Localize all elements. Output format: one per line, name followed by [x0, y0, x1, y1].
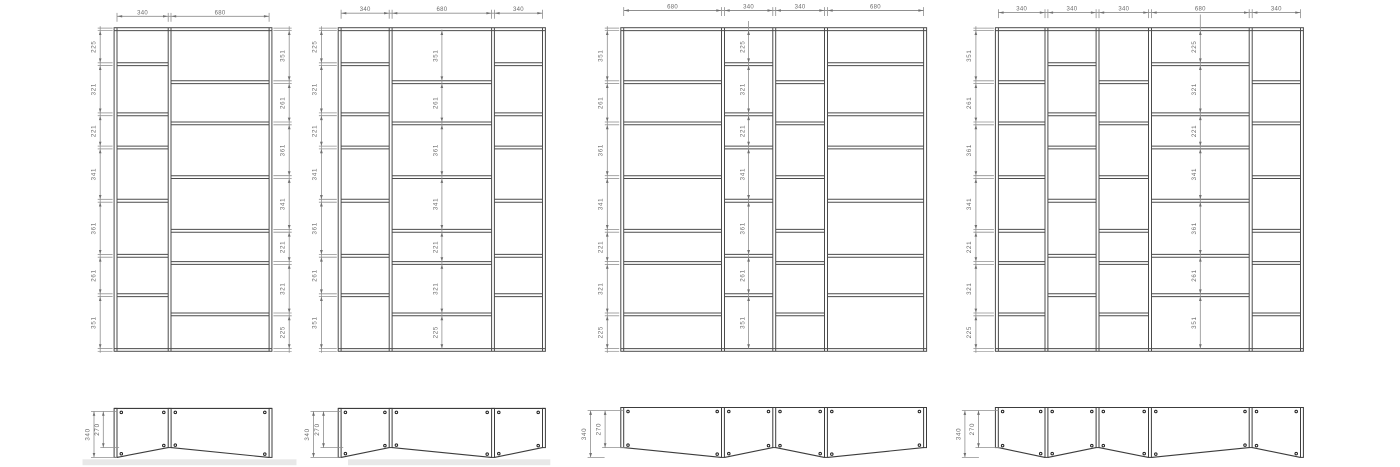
svg-text:361: 361: [598, 144, 605, 156]
svg-text:225: 225: [280, 326, 287, 338]
svg-text:340: 340: [743, 5, 754, 11]
svg-text:321: 321: [739, 83, 746, 95]
svg-text:225: 225: [1191, 40, 1198, 52]
svg-text:361: 361: [312, 222, 319, 234]
svg-text:351: 351: [280, 49, 287, 61]
svg-text:261: 261: [739, 269, 746, 281]
svg-text:321: 321: [280, 282, 287, 294]
svg-text:321: 321: [598, 282, 605, 294]
svg-text:680: 680: [1195, 7, 1206, 13]
svg-text:221: 221: [966, 241, 973, 253]
svg-text:221: 221: [280, 241, 287, 253]
svg-text:351: 351: [312, 316, 319, 328]
svg-text:340: 340: [1271, 7, 1282, 13]
svg-text:261: 261: [312, 269, 319, 281]
svg-text:321: 321: [433, 282, 440, 294]
svg-text:341: 341: [1191, 168, 1198, 180]
svg-text:270: 270: [314, 423, 321, 435]
svg-text:341: 341: [598, 198, 605, 210]
svg-text:680: 680: [436, 7, 447, 13]
svg-text:361: 361: [739, 222, 746, 234]
svg-text:341: 341: [966, 198, 973, 210]
svg-text:321: 321: [966, 282, 973, 294]
svg-text:225: 225: [433, 326, 440, 338]
svg-text:361: 361: [91, 222, 98, 234]
svg-text:261: 261: [1191, 269, 1198, 281]
svg-text:221: 221: [91, 125, 98, 137]
svg-text:270: 270: [969, 423, 976, 435]
svg-text:351: 351: [91, 316, 98, 328]
svg-text:680: 680: [215, 10, 226, 16]
svg-text:225: 225: [739, 40, 746, 52]
svg-text:261: 261: [433, 97, 440, 109]
svg-text:321: 321: [312, 83, 319, 95]
svg-text:341: 341: [91, 168, 98, 180]
svg-text:351: 351: [598, 49, 605, 61]
svg-text:341: 341: [739, 168, 746, 180]
svg-text:361: 361: [280, 144, 287, 156]
svg-text:341: 341: [433, 198, 440, 210]
svg-text:361: 361: [966, 144, 973, 156]
svg-text:351: 351: [433, 49, 440, 61]
svg-text:340: 340: [137, 10, 148, 16]
svg-text:225: 225: [91, 40, 98, 52]
svg-text:340: 340: [360, 7, 371, 13]
svg-text:340: 340: [1016, 7, 1027, 13]
svg-text:261: 261: [966, 97, 973, 109]
svg-text:340: 340: [795, 5, 806, 11]
svg-text:351: 351: [1191, 316, 1198, 328]
svg-text:261: 261: [280, 97, 287, 109]
svg-text:341: 341: [280, 198, 287, 210]
svg-text:351: 351: [966, 49, 973, 61]
svg-text:270: 270: [94, 423, 101, 435]
svg-text:221: 221: [312, 125, 319, 137]
svg-text:361: 361: [433, 144, 440, 156]
svg-text:340: 340: [85, 428, 92, 440]
svg-text:261: 261: [598, 97, 605, 109]
svg-text:225: 225: [966, 326, 973, 338]
svg-text:221: 221: [433, 241, 440, 253]
svg-text:340: 340: [304, 428, 311, 440]
svg-text:340: 340: [1118, 7, 1129, 13]
svg-text:225: 225: [598, 326, 605, 338]
svg-text:680: 680: [667, 5, 678, 11]
svg-text:680: 680: [870, 5, 881, 11]
svg-text:225: 225: [312, 40, 319, 52]
svg-text:221: 221: [598, 241, 605, 253]
svg-text:221: 221: [1191, 125, 1198, 137]
svg-text:341: 341: [312, 168, 319, 180]
svg-text:351: 351: [739, 316, 746, 328]
svg-text:340: 340: [513, 7, 524, 13]
svg-text:340: 340: [955, 428, 962, 440]
svg-text:221: 221: [739, 125, 746, 137]
svg-text:270: 270: [596, 423, 603, 435]
svg-text:261: 261: [91, 269, 98, 281]
svg-text:321: 321: [1191, 83, 1198, 95]
svg-text:340: 340: [581, 428, 588, 440]
svg-text:361: 361: [1191, 222, 1198, 234]
svg-text:321: 321: [91, 83, 98, 95]
svg-text:340: 340: [1067, 7, 1078, 13]
